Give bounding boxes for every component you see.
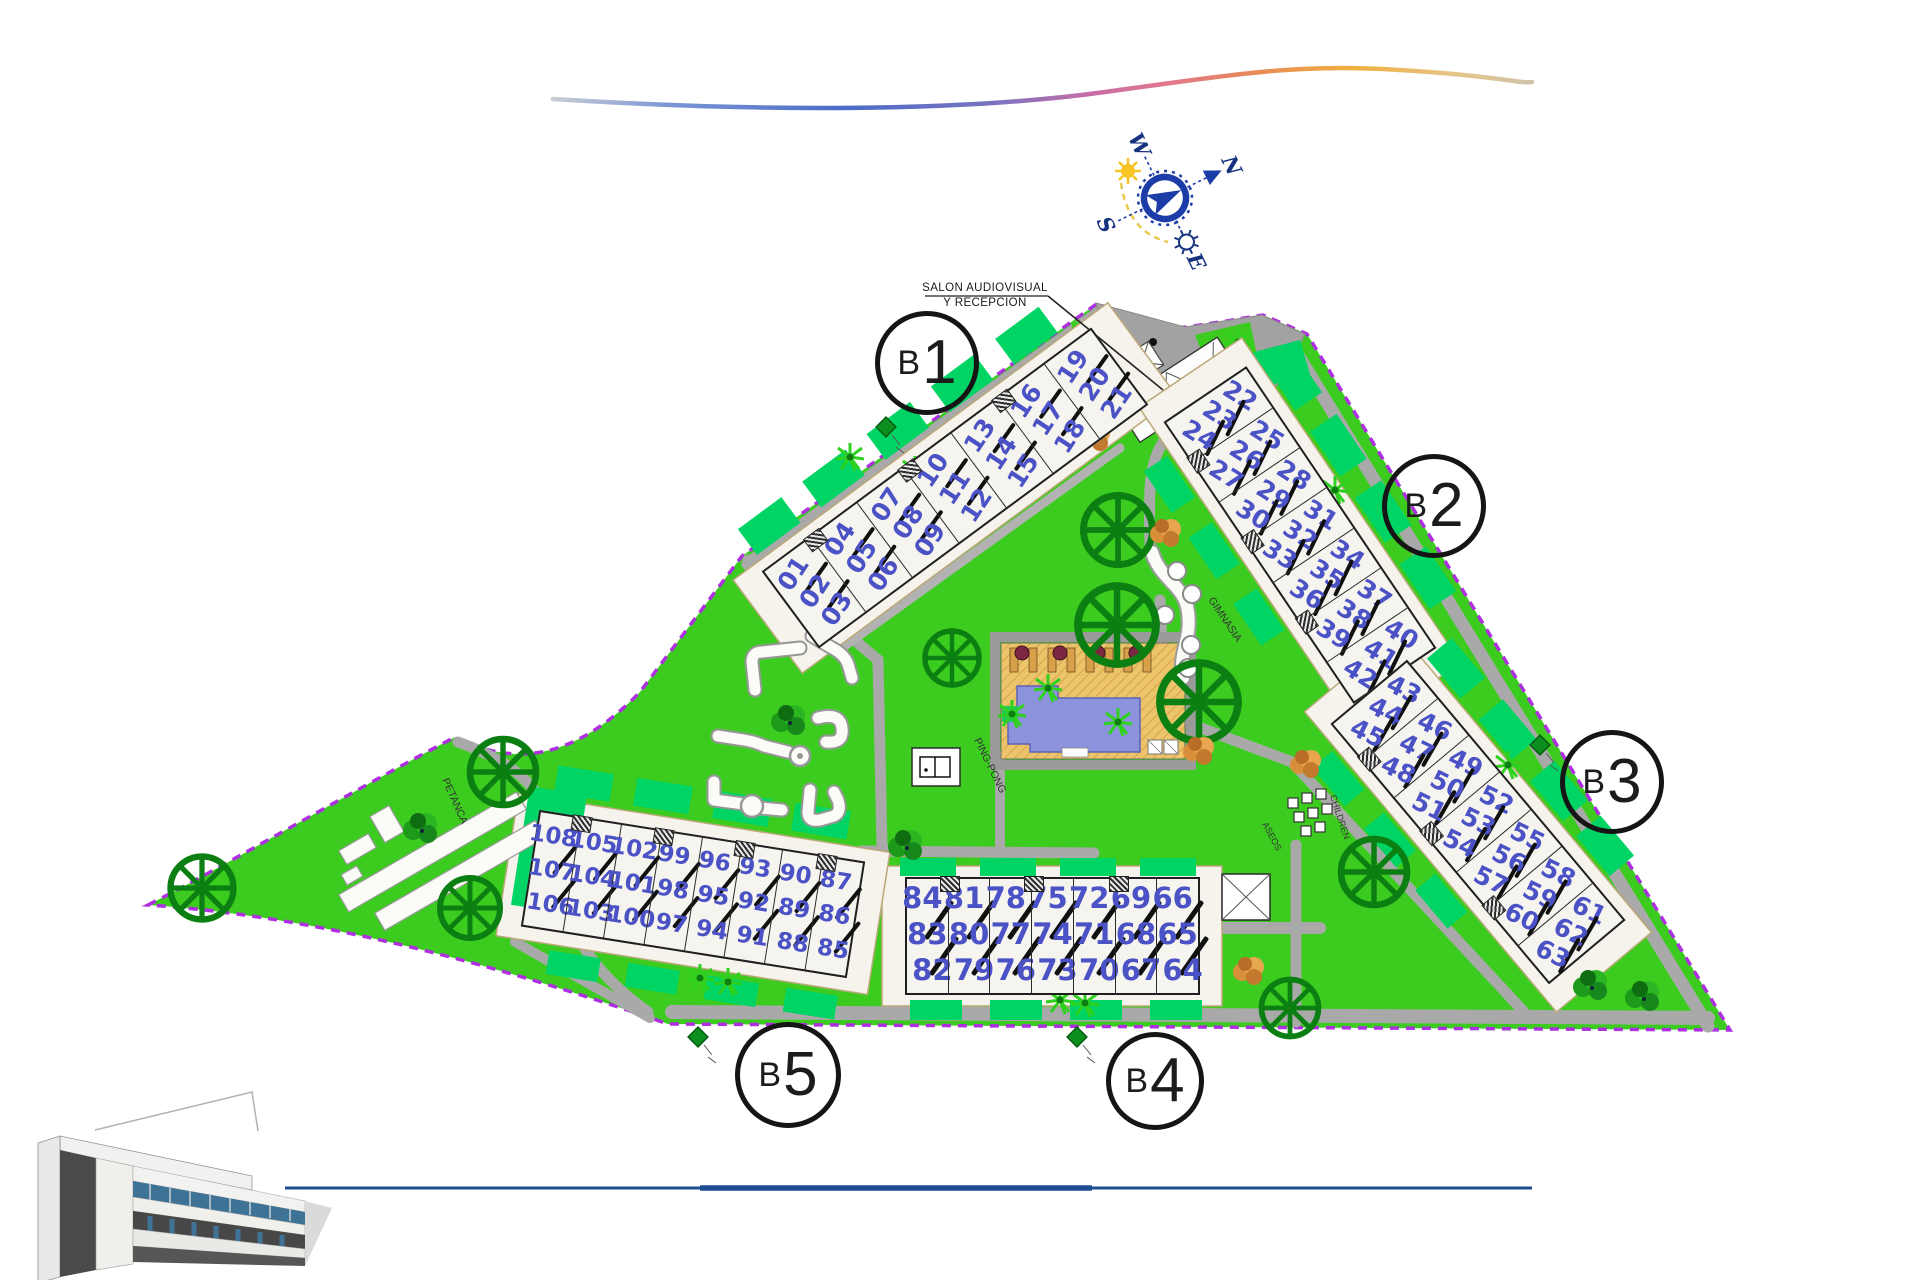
unit-number: 68 [1116, 920, 1156, 949]
unit-number: 80 [949, 920, 989, 949]
unit-number: 99 [657, 842, 692, 870]
compass-east-label: E [1181, 248, 1211, 275]
block-label-b3: B 3 [1560, 730, 1664, 834]
unit-number: 83 [907, 920, 947, 949]
unit-number: 86 [817, 902, 852, 930]
compass-west-label: W [1123, 129, 1157, 163]
block-label-prefix: B [1404, 487, 1427, 526]
ping-pong-area [912, 748, 960, 786]
block-label-b5: B 5 [735, 1022, 841, 1128]
unit-number: 85 [815, 936, 850, 964]
unit-number: 90 [778, 861, 813, 889]
site-plan-canvas: SALON AUDIOVISUAL Y RECEPCION PETANCA PI… [0, 0, 1920, 1280]
block-label-b2: B 2 [1382, 454, 1486, 558]
salon-label-line2: Y RECEPCION [943, 297, 1026, 309]
unit-cell: 696867 [1115, 879, 1157, 993]
unit-number: 92 [736, 889, 771, 917]
block-label-b1: B 1 [875, 311, 979, 415]
unit-cell: 818079 [948, 879, 990, 993]
site-plan-drawing: SALON AUDIOVISUAL Y RECEPCION PETANCA PI… [0, 0, 1920, 1280]
unit-number: 77 [991, 920, 1031, 949]
unit-number: 72 [1069, 884, 1109, 913]
unit-number: 82 [912, 956, 952, 985]
compass-north-label: N [1216, 150, 1248, 180]
unit-number: 93 [737, 855, 772, 883]
unit-cell: 757473 [1031, 879, 1073, 993]
brand-swoosh-line [553, 68, 1532, 108]
unit-cell: 848382 [907, 879, 948, 993]
stairwell-hatch [734, 840, 756, 859]
unit-cell: 787776 [989, 879, 1031, 993]
unit-number: 98 [655, 876, 690, 904]
building-b4: 8483828180797877767574737271706968676665… [905, 877, 1200, 995]
sun-icon [1115, 158, 1141, 184]
building-render [38, 1092, 332, 1280]
block-label-prefix: B [897, 344, 920, 383]
unit-number: 76 [996, 956, 1036, 985]
unit-number: 84 [902, 884, 942, 913]
unit-cell: 666564 [1156, 879, 1198, 993]
unit-number: 66 [1152, 884, 1192, 913]
unit-number: 64 [1162, 956, 1202, 985]
stairwell-hatch [1024, 876, 1044, 892]
stairwell-hatch [815, 853, 837, 872]
block-label-prefix: B [758, 1056, 781, 1095]
block-label-b4: B 4 [1106, 1032, 1204, 1130]
block-label-number: 5 [783, 1044, 817, 1106]
unit-number: 91 [735, 923, 770, 951]
unit-number: 70 [1079, 956, 1119, 985]
unit-number: 71 [1074, 920, 1114, 949]
block-label-prefix: B [1125, 1062, 1148, 1101]
block-label-number: 1 [922, 332, 956, 394]
aseos-building [1222, 874, 1270, 920]
unit-number: 79 [954, 956, 994, 985]
block-label-number: 3 [1607, 751, 1641, 813]
salon-label-line1: SALON AUDIOVISUAL [922, 282, 1048, 294]
unit-number: 94 [694, 917, 729, 945]
unit-number: 95 [696, 883, 731, 911]
unit-number: 65 [1157, 920, 1197, 949]
unit-number: 87 [818, 868, 853, 896]
block-label-number: 4 [1150, 1050, 1184, 1112]
unit-number: 97 [654, 910, 689, 938]
block-label-prefix: B [1582, 763, 1605, 802]
stairwell-hatch [571, 814, 593, 833]
unit-number: 73 [1037, 956, 1077, 985]
unit-number: 96 [697, 848, 732, 876]
unit-number: 89 [776, 895, 811, 923]
compass-south-label: S [1092, 212, 1121, 237]
stairwell-hatch [1109, 876, 1129, 892]
block-label-number: 2 [1429, 475, 1463, 537]
stairwell-hatch [940, 876, 960, 892]
stairwell-hatch [652, 827, 674, 846]
unit-number: 74 [1032, 920, 1072, 949]
unit-cell: 727170 [1073, 879, 1115, 993]
unit-number: 88 [775, 930, 810, 958]
unit-number: 78 [986, 884, 1026, 913]
unit-number: 67 [1121, 956, 1161, 985]
compass-rose: N W S E [1065, 96, 1279, 303]
